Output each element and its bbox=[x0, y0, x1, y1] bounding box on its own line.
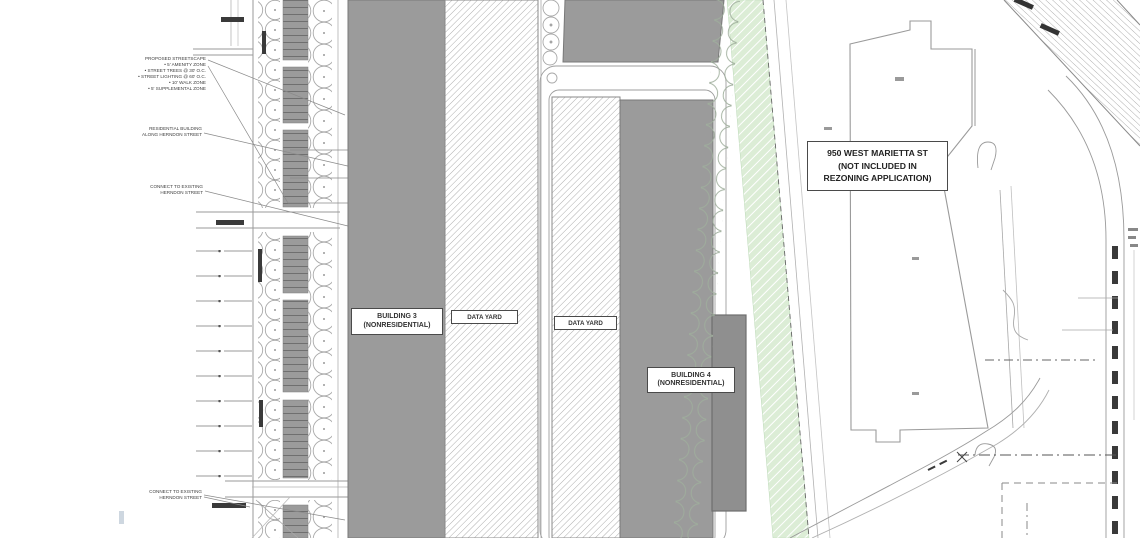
connect-north-annotation: CONNECT TO EXISTING HERNDON STREET bbox=[131, 184, 203, 196]
building-3-name: BUILDING 3 bbox=[377, 313, 417, 322]
street-tree-row-west bbox=[258, 0, 280, 208]
parcel-950-west-marietta bbox=[824, 21, 1095, 442]
data-yard-east-label: DATA YARD bbox=[554, 316, 617, 330]
parcel-950-label: 950 WEST MARIETTA ST (NOT INCLUDED IN RE… bbox=[807, 141, 948, 191]
parcel-limit-dashed bbox=[1002, 483, 1120, 538]
print-artifact bbox=[119, 511, 124, 524]
site-plan: BUILDING 3 (NONRESIDENTIAL) DATA YARD DA… bbox=[0, 0, 1140, 538]
connect-south-annotation: CONNECT TO EXISTING HERNDON STREET bbox=[130, 489, 202, 501]
rail-edge-marks bbox=[1128, 228, 1138, 247]
building-4-name: BUILDING 4 bbox=[671, 372, 711, 381]
data-yard-west-label: DATA YARD bbox=[451, 310, 518, 324]
building-3-label: BUILDING 3 (NONRESIDENTIAL) bbox=[351, 308, 443, 335]
railroad-corridor bbox=[1004, 0, 1140, 538]
residential-annotation: RESIDENTIAL BUILDING ALONG HERNDON STREE… bbox=[130, 126, 202, 138]
building-north-footprint bbox=[563, 0, 724, 62]
landscape-buffer bbox=[671, 0, 830, 538]
southeast-roads bbox=[790, 378, 1120, 538]
data-yard-west bbox=[445, 0, 538, 538]
building-3-use: (NONRESIDENTIAL) bbox=[364, 322, 431, 331]
building-4-label: BUILDING 4 (NONRESIDENTIAL) bbox=[647, 367, 735, 393]
streetscape-annotation: PROPOSED STREETSCAPE • 5' AMENITY ZONE •… bbox=[128, 56, 206, 93]
building-4-use: (NONRESIDENTIAL) bbox=[658, 380, 725, 389]
parking-stall-strips bbox=[283, 0, 308, 538]
building-3-footprint bbox=[348, 0, 445, 538]
street-tree-row-east bbox=[308, 0, 332, 208]
on-street-parking-rows bbox=[196, 236, 252, 482]
parcel-950-outline bbox=[850, 21, 988, 442]
tiny-site-marks bbox=[824, 77, 919, 395]
building-4-annex bbox=[712, 315, 746, 511]
